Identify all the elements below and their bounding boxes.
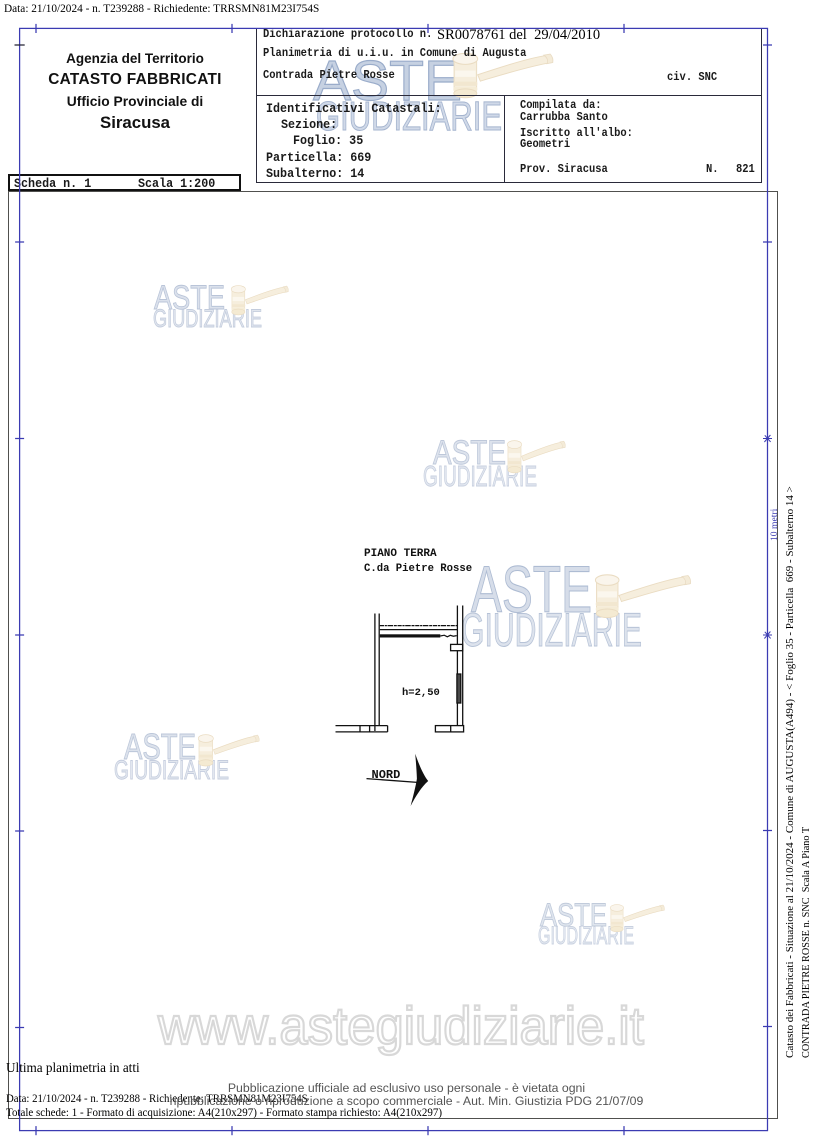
svg-text:10 metri: 10 metri (769, 508, 780, 541)
